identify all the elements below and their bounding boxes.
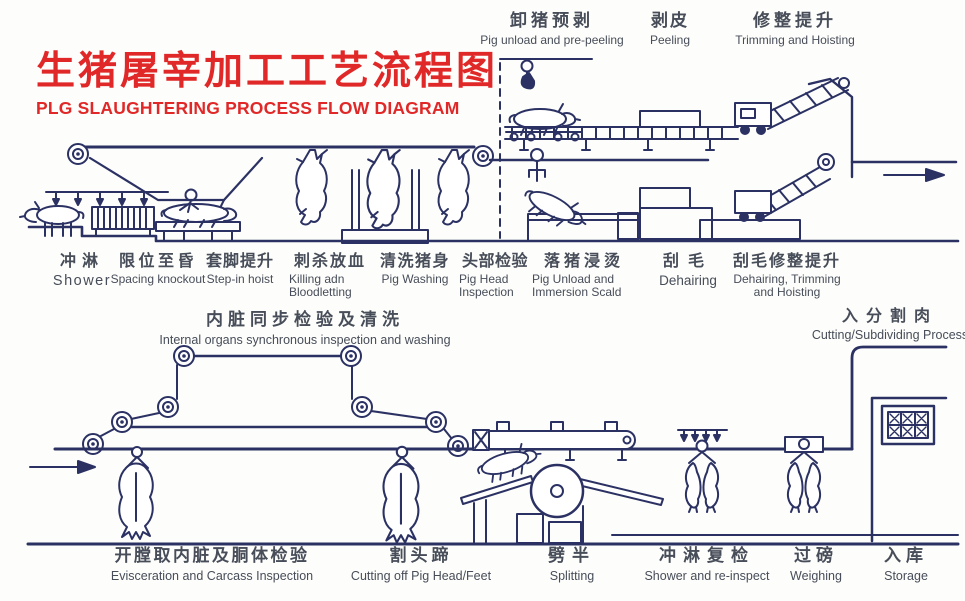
hanging-pig-icon <box>438 150 469 225</box>
station-label-step-in-hoist: 套脚提升 Step-in hoist <box>206 252 274 286</box>
walking-pig-icon <box>20 202 83 236</box>
mid-label-organ-inspection: 内脏同步检验及清洗 Internal organs synchronous in… <box>159 311 450 347</box>
station-label-cutting-head-feet: 割头蹄 Cutting off Pig Head/Feet <box>351 547 491 583</box>
station-label-immersion-scald: 落猪浸烫 Pig Unload and Immersion Scald <box>532 252 636 300</box>
upper-elevator-icon <box>735 78 849 134</box>
top-label-unload-prepeel: 卸猪预剥 Pig unload and pre-peeling <box>480 12 623 47</box>
station-label-shower-reinspect: 冲淋复检 Shower and re-inspect <box>644 547 769 583</box>
station-label-evisceration: 开膛取内脏及胴体检验 Evisceration and Carcass Insp… <box>111 547 313 583</box>
flow-arrow-icon <box>30 461 95 473</box>
station-label-shower: 冲淋 Shower <box>53 252 111 289</box>
splitting-saw-icon <box>461 440 663 543</box>
lower-elevator-icon <box>700 154 834 239</box>
station-label-dehairing-trimming-hoisting: 刮毛修整提升 Dehairing, Trimming and Hoisting <box>724 252 850 300</box>
page-title-en: PLG SLAUGHTERING PROCESS FLOW DIAGRAM <box>36 98 498 119</box>
station-label-head-inspection: 头部检验 Pig Head Inspection <box>459 252 531 300</box>
eviscerated-pig-icon <box>119 447 153 539</box>
page-title: 生猪屠宰加工工艺流程图 PLG SLAUGHTERING PROCESS FLO… <box>36 40 498 119</box>
scald-tank-icon <box>519 180 638 241</box>
pulley-icon <box>68 144 88 164</box>
dehairing-machine-icon <box>618 188 712 239</box>
station-label-weighing: 过磅 Weighing <box>790 547 842 583</box>
ground-line-bottom <box>28 535 958 544</box>
flow-arrow-icon <box>884 169 944 181</box>
restrainer-icon <box>92 207 154 235</box>
shower-reinspect-icon <box>678 430 727 512</box>
rail-mid-top <box>490 149 708 181</box>
station-label-splitting: 劈半 Splitting <box>548 547 596 583</box>
storage-room-icon <box>872 398 946 541</box>
station-label-storage: 入库 Storage <box>884 547 928 583</box>
top-label-peeling: 剥皮 Peeling <box>650 12 690 47</box>
station-label-killing-bloodletting: 刺杀放血 Killing adn Bloodletting <box>289 252 371 300</box>
hanging-pig-icon <box>296 150 327 225</box>
page-title-cn: 生猪屠宰加工工艺流程图 <box>36 40 498 96</box>
station-label-pig-washing: 清洗猪身 Pig Washing <box>380 252 450 286</box>
flow-diagram-page: 生猪屠宰加工工艺流程图 PLG SLAUGHTERING PROCESS FLO… <box>0 0 965 601</box>
station-label-dehairing: 刮毛 Dehairing <box>659 252 717 288</box>
cleated-conveyor-icon <box>473 422 635 460</box>
mid-label-cutting-subdividing: 入分割肉 Cutting/Subdividing Process <box>812 307 965 342</box>
pre-peel-sled-icon <box>506 104 582 141</box>
weighing-scale-icon <box>785 437 823 512</box>
ground-line-top <box>29 227 958 241</box>
organ-loop-rail <box>83 346 468 456</box>
pulley-icon <box>473 146 493 166</box>
top-label-trimming-hoisting: 修整提升 Trimming and Hoisting <box>735 12 855 47</box>
station-label-spacing-knockout: 限位至昏 Spacing knockout <box>111 252 206 286</box>
eviscerated-pig-icon <box>384 447 419 543</box>
hanging-pig-icon <box>367 150 399 228</box>
